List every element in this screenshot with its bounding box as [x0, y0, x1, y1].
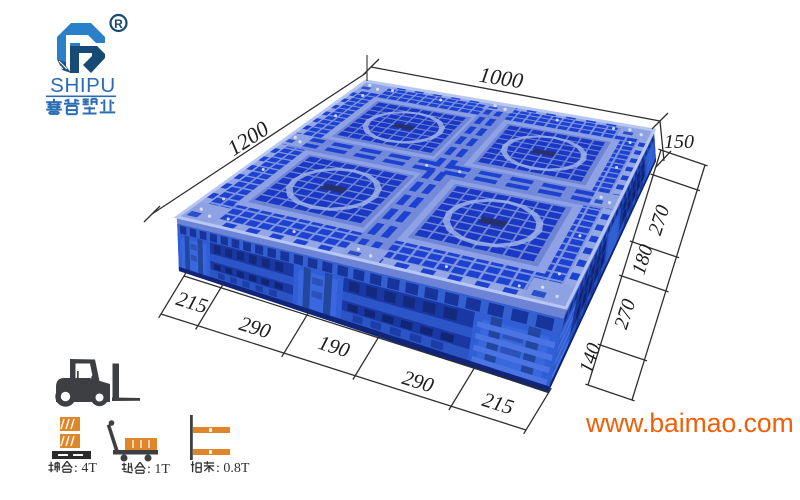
svg-text:www.baimao.com: www.baimao.com — [585, 408, 794, 438]
svg-text:150: 150 — [664, 131, 694, 153]
svg-text:: 1T: : 1T — [147, 462, 170, 477]
svg-text:R: R — [114, 17, 123, 31]
svg-text:: 0.8T: : 0.8T — [216, 461, 250, 476]
svg-text:SHIPU: SHIPU — [50, 74, 116, 97]
svg-text:: 4T: : 4T — [74, 461, 97, 476]
